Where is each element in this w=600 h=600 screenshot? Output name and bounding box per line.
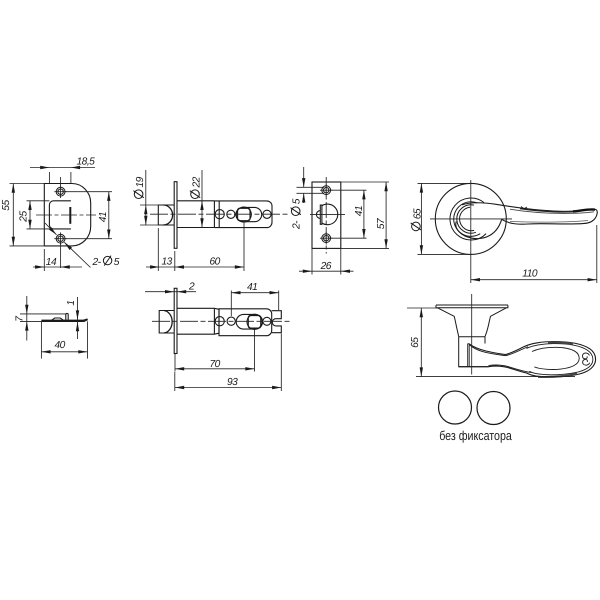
- svg-text:5: 5: [114, 257, 120, 268]
- svg-text:60: 60: [210, 257, 221, 268]
- svg-text:2-: 2-: [92, 257, 102, 268]
- svg-text:41: 41: [98, 212, 109, 222]
- svg-text:70: 70: [210, 359, 221, 370]
- svg-text:19: 19: [135, 176, 146, 187]
- svg-text:22: 22: [192, 176, 203, 188]
- svg-text:110: 110: [522, 268, 538, 279]
- svg-text:7: 7: [15, 316, 26, 322]
- svg-text:65: 65: [410, 337, 421, 348]
- svg-text:1: 1: [66, 300, 77, 305]
- svg-text:41: 41: [247, 282, 257, 293]
- svg-text:65: 65: [412, 208, 423, 219]
- svg-text:2-: 2-: [292, 220, 303, 230]
- svg-text:26: 26: [320, 261, 332, 272]
- svg-text:без фиксатора: без фиксатора: [439, 428, 512, 443]
- svg-text:5: 5: [292, 198, 303, 204]
- svg-text:57: 57: [376, 218, 387, 229]
- svg-text:14: 14: [46, 257, 57, 268]
- svg-text:41: 41: [354, 206, 365, 216]
- svg-text:55: 55: [1, 200, 12, 211]
- svg-text:93: 93: [227, 377, 238, 388]
- svg-text:18,5: 18,5: [77, 157, 96, 168]
- svg-text:2: 2: [188, 282, 195, 293]
- svg-text:13: 13: [162, 257, 173, 268]
- svg-text:25: 25: [18, 211, 29, 223]
- svg-text:40: 40: [55, 340, 66, 351]
